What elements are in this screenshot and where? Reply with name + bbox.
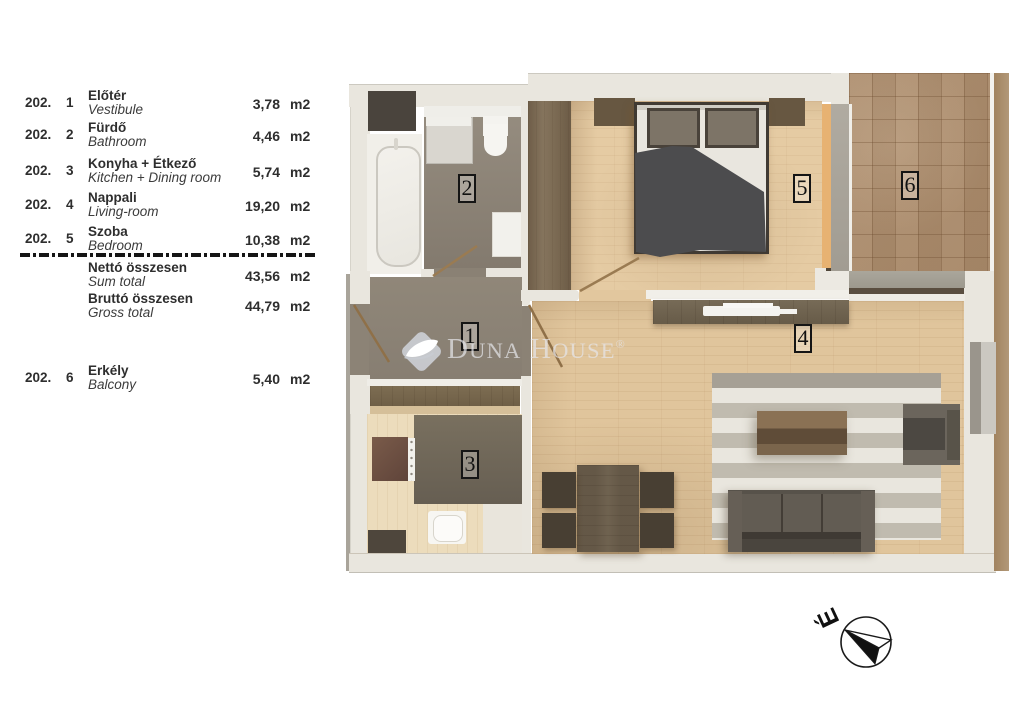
svg-text:DUNA HOUSE®: DUNA HOUSE® bbox=[447, 333, 626, 365]
svg-text:É: É bbox=[811, 604, 846, 632]
